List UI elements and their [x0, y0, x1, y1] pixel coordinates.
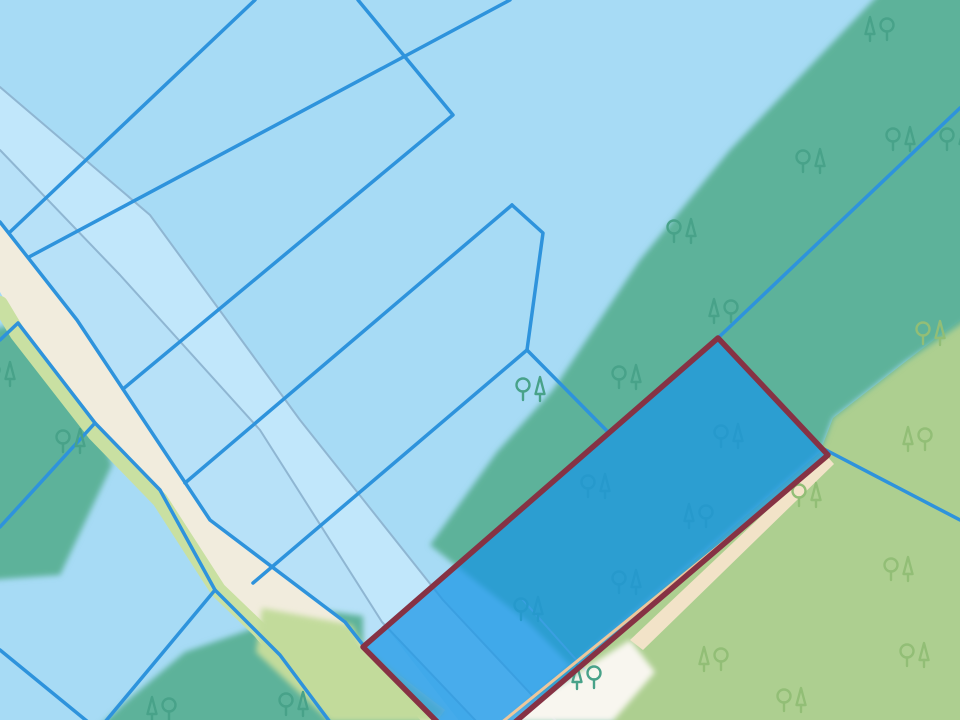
map-view — [0, 0, 960, 720]
map-canvas[interactable] — [0, 0, 960, 720]
